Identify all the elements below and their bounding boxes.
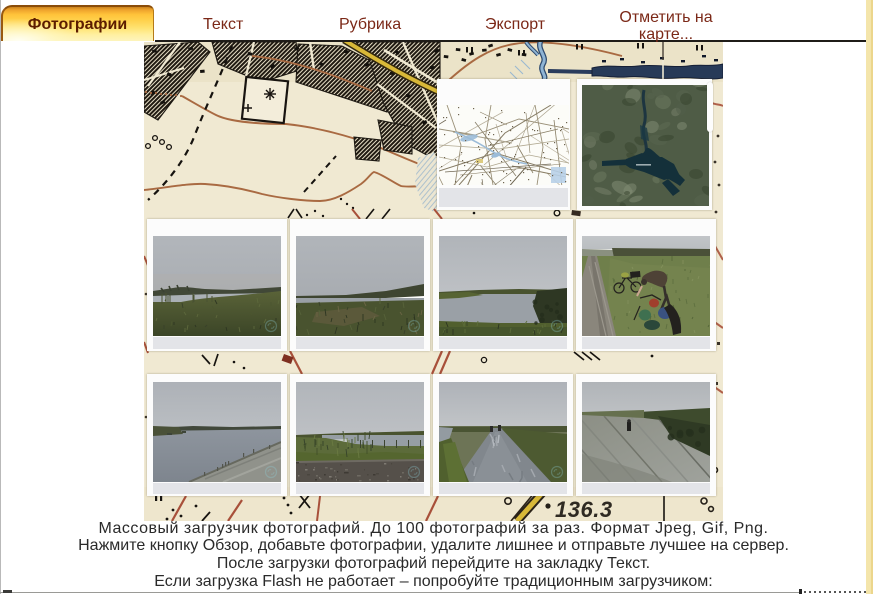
- svg-text:136.3: 136.3: [555, 497, 613, 521]
